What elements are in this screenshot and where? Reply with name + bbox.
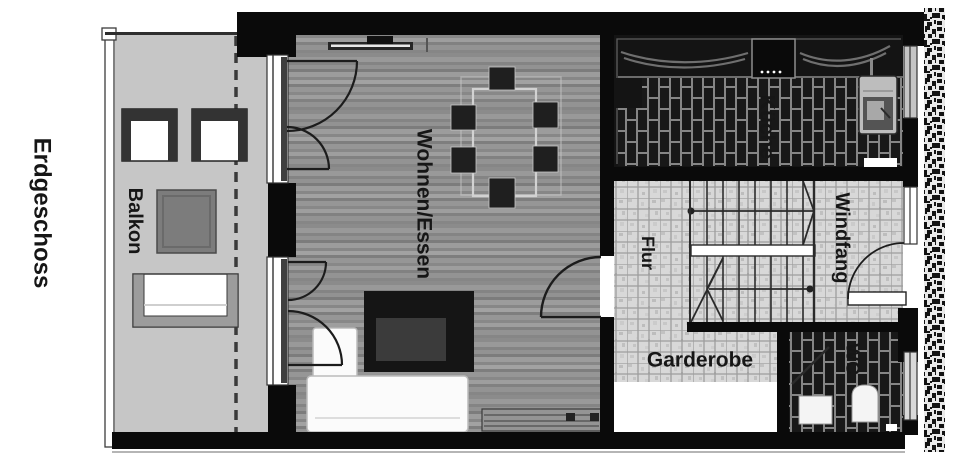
svg-text:Garderobe: Garderobe [647,349,753,372]
svg-text:WC: WC [842,343,863,375]
svg-text:Windfang: Windfang [831,193,853,284]
svg-text:Erdgeschoss: Erdgeschoss [29,138,56,289]
svg-text:Balkon: Balkon [124,188,146,255]
svg-text:Flur: Flur [638,236,658,270]
svg-text:Küche: Küche [756,95,779,159]
svg-text:Wohnen/Essen: Wohnen/Essen [413,129,436,279]
